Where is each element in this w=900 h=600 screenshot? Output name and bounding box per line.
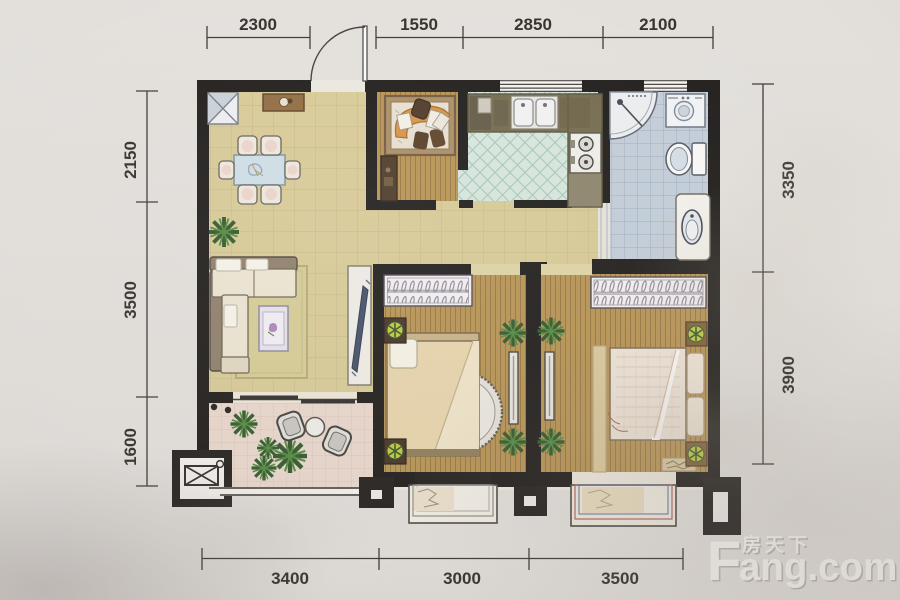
svg-text:3500: 3500	[601, 569, 639, 588]
svg-text:3400: 3400	[271, 569, 309, 588]
svg-text:2150: 2150	[121, 141, 140, 179]
svg-text:2850: 2850	[514, 15, 552, 34]
svg-text:1550: 1550	[400, 15, 438, 34]
svg-text:2300: 2300	[239, 15, 277, 34]
svg-text:1600: 1600	[121, 428, 140, 466]
svg-text:3900: 3900	[779, 356, 798, 394]
svg-text:3000: 3000	[443, 569, 481, 588]
svg-text:3500: 3500	[121, 281, 140, 319]
svg-text:F: F	[707, 529, 741, 592]
svg-text:ang.com: ang.com	[739, 546, 897, 589]
svg-text:2100: 2100	[639, 15, 677, 34]
svg-text:3350: 3350	[779, 161, 798, 199]
